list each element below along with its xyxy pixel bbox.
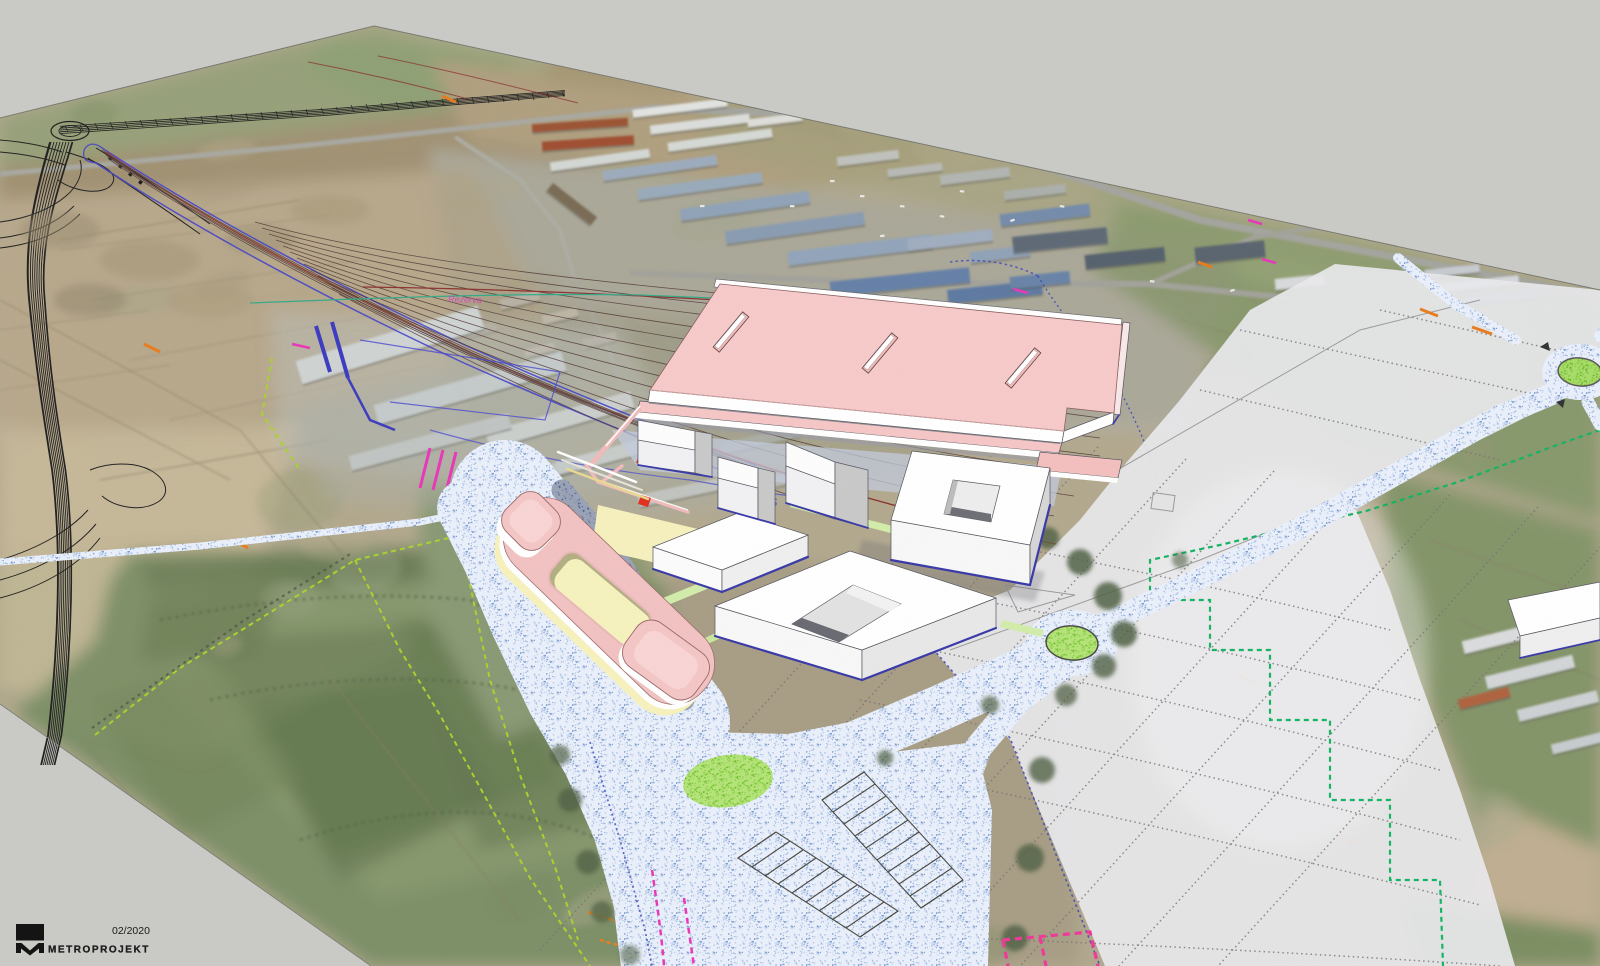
svg-text:02/2020: 02/2020 xyxy=(112,925,150,937)
svg-text:METROPROJEKT: METROPROJEKT xyxy=(48,945,150,956)
